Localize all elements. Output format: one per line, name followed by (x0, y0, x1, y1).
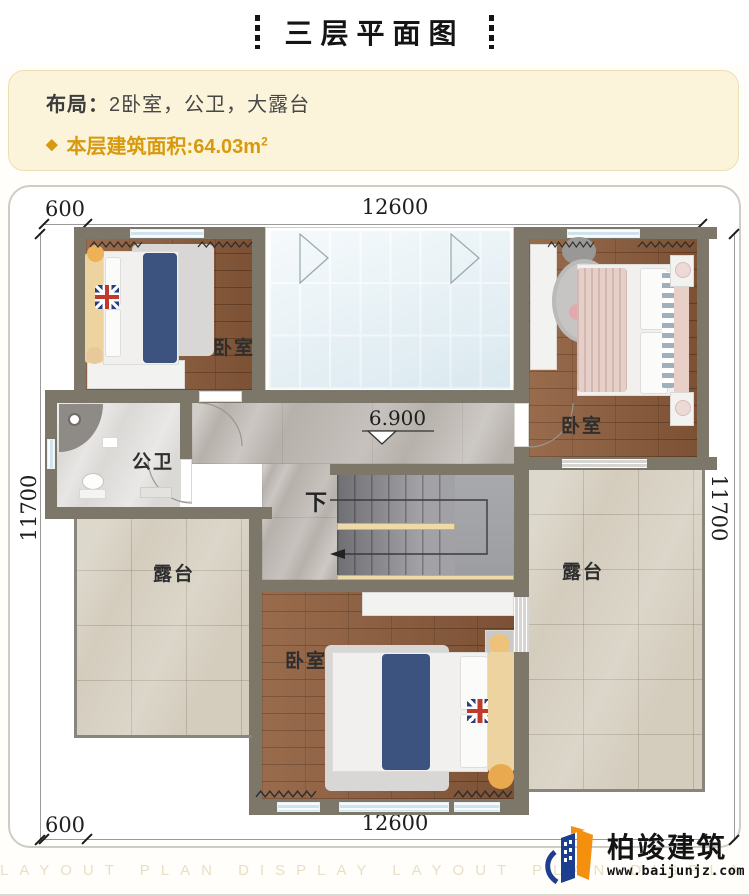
logo-website: www.baijunjz.com (607, 863, 745, 879)
stairs-down-label: 下 (298, 485, 334, 513)
elevation-symbol (360, 430, 436, 446)
shower-head (68, 413, 81, 426)
floor-plan-page: 三层平面图 布局：2卧室，公卫，大露台 ◆ 本层建筑面积:64.03m2 600… (0, 0, 749, 896)
dim-line-top (44, 224, 702, 225)
toilet-tank (79, 489, 106, 499)
dim-top-left: 600 (40, 197, 90, 221)
side-table (86, 347, 103, 364)
door-arc-bedroom-tl (199, 403, 242, 446)
window-bedroom-bottom-1 (277, 802, 320, 812)
room-label-terrace-left: 露台 (146, 559, 202, 586)
door-leaf-bedroom-tl (199, 391, 242, 402)
title-dash-left (255, 15, 260, 49)
dim-left-height: 11700 (17, 468, 41, 548)
wall (45, 507, 272, 519)
page-title: 三层平面图 (284, 12, 464, 52)
room-label-bedroom-tr: 卧室 (556, 411, 608, 438)
logo: 柏竣建筑 www.baijunjz.com (541, 824, 745, 888)
info-box: 布局：2卧室，公卫，大露台 ◆ 本层建筑面积:64.03m2 (8, 70, 739, 171)
bed-blanket-pink (577, 268, 627, 392)
toilet-bowl (82, 473, 104, 490)
floor-terrace-right (529, 470, 702, 789)
layout-value: 2卧室，公卫，大露台 (109, 94, 310, 116)
bed-headboard (488, 652, 514, 772)
skylight-frame (265, 227, 514, 393)
wall (252, 227, 265, 402)
nightstand-decor (489, 634, 510, 654)
window-bedroom-tl (130, 229, 204, 238)
bed-blanket (143, 253, 177, 363)
window-bathroom (47, 439, 55, 469)
dim-bottom-left: 600 (40, 813, 90, 837)
wall (249, 507, 262, 815)
dim-top-width: 12600 (340, 195, 450, 219)
wardrobe (362, 592, 514, 616)
stair-rail-bottom (337, 575, 514, 580)
dim-right-height: 11700 (707, 468, 731, 548)
title-dash-right (489, 15, 494, 49)
curtain-squiggle (90, 241, 142, 248)
bed-blanket (382, 654, 430, 770)
pillow (105, 309, 121, 357)
wall (697, 227, 709, 470)
skylight-open-triangles (266, 228, 515, 394)
curtain-squiggle (198, 241, 252, 248)
diamond-icon: ◆ (46, 137, 58, 152)
union-jack-pillow (95, 285, 119, 309)
pouf (488, 764, 514, 789)
railing-terrace-right-bottom (529, 789, 705, 792)
sliding-door-bedroom-bottom (514, 597, 529, 652)
nightstand-decor (675, 262, 691, 278)
railing-terrace-left-bottom (74, 735, 252, 738)
plan-canvas: 600 12600 11700 11700 600 12600 (8, 185, 741, 848)
room-label-bedroom-bottom: 卧室 (278, 646, 334, 673)
logo-building-icon (541, 824, 603, 888)
area-line: ◆ 本层建筑面积:64.03m2 (46, 130, 738, 159)
railing-terrace-left (74, 519, 77, 738)
curtain-squiggle (454, 790, 512, 798)
elevation-value: 6.900 (355, 406, 440, 430)
window-bedroom-bottom-3 (454, 802, 500, 812)
logo-text: 柏竣建筑 www.baijunjz.com (607, 833, 745, 878)
page-header: 三层平面图 (0, 0, 749, 64)
room-label-terrace-right: 露台 (555, 557, 611, 584)
room-label-bathroom: 公卫 (125, 447, 181, 474)
wall (45, 390, 514, 403)
layout-label: 布局： (46, 94, 109, 116)
curtain-squiggle (256, 790, 316, 798)
sink (102, 437, 118, 448)
wall (249, 580, 522, 592)
stair-direction-path (328, 493, 496, 559)
sliding-door-terrace-right (562, 459, 647, 468)
door-leaf-bedroom-tr (514, 403, 529, 447)
wall (180, 390, 192, 459)
railing-terrace-right (702, 470, 705, 792)
dim-line-right (734, 234, 735, 840)
floor-terrace-left (77, 519, 249, 735)
curtain-squiggle (638, 241, 694, 248)
curtain-squiggle (548, 241, 594, 248)
layout-line: 布局：2卧室，公卫，大露台 (46, 88, 738, 117)
area-text: 本层建筑面积:64.03m2 (67, 130, 268, 159)
bath-mat (140, 487, 172, 498)
wall (330, 464, 514, 475)
room-label-bedroom-tl: 卧室 (208, 333, 260, 360)
window-bedroom-bottom-2 (339, 802, 449, 812)
nightstand-decor (675, 400, 691, 416)
pillow-striped (662, 272, 674, 388)
floor-hallway-column (262, 464, 337, 580)
logo-name: 柏竣建筑 (607, 833, 745, 862)
